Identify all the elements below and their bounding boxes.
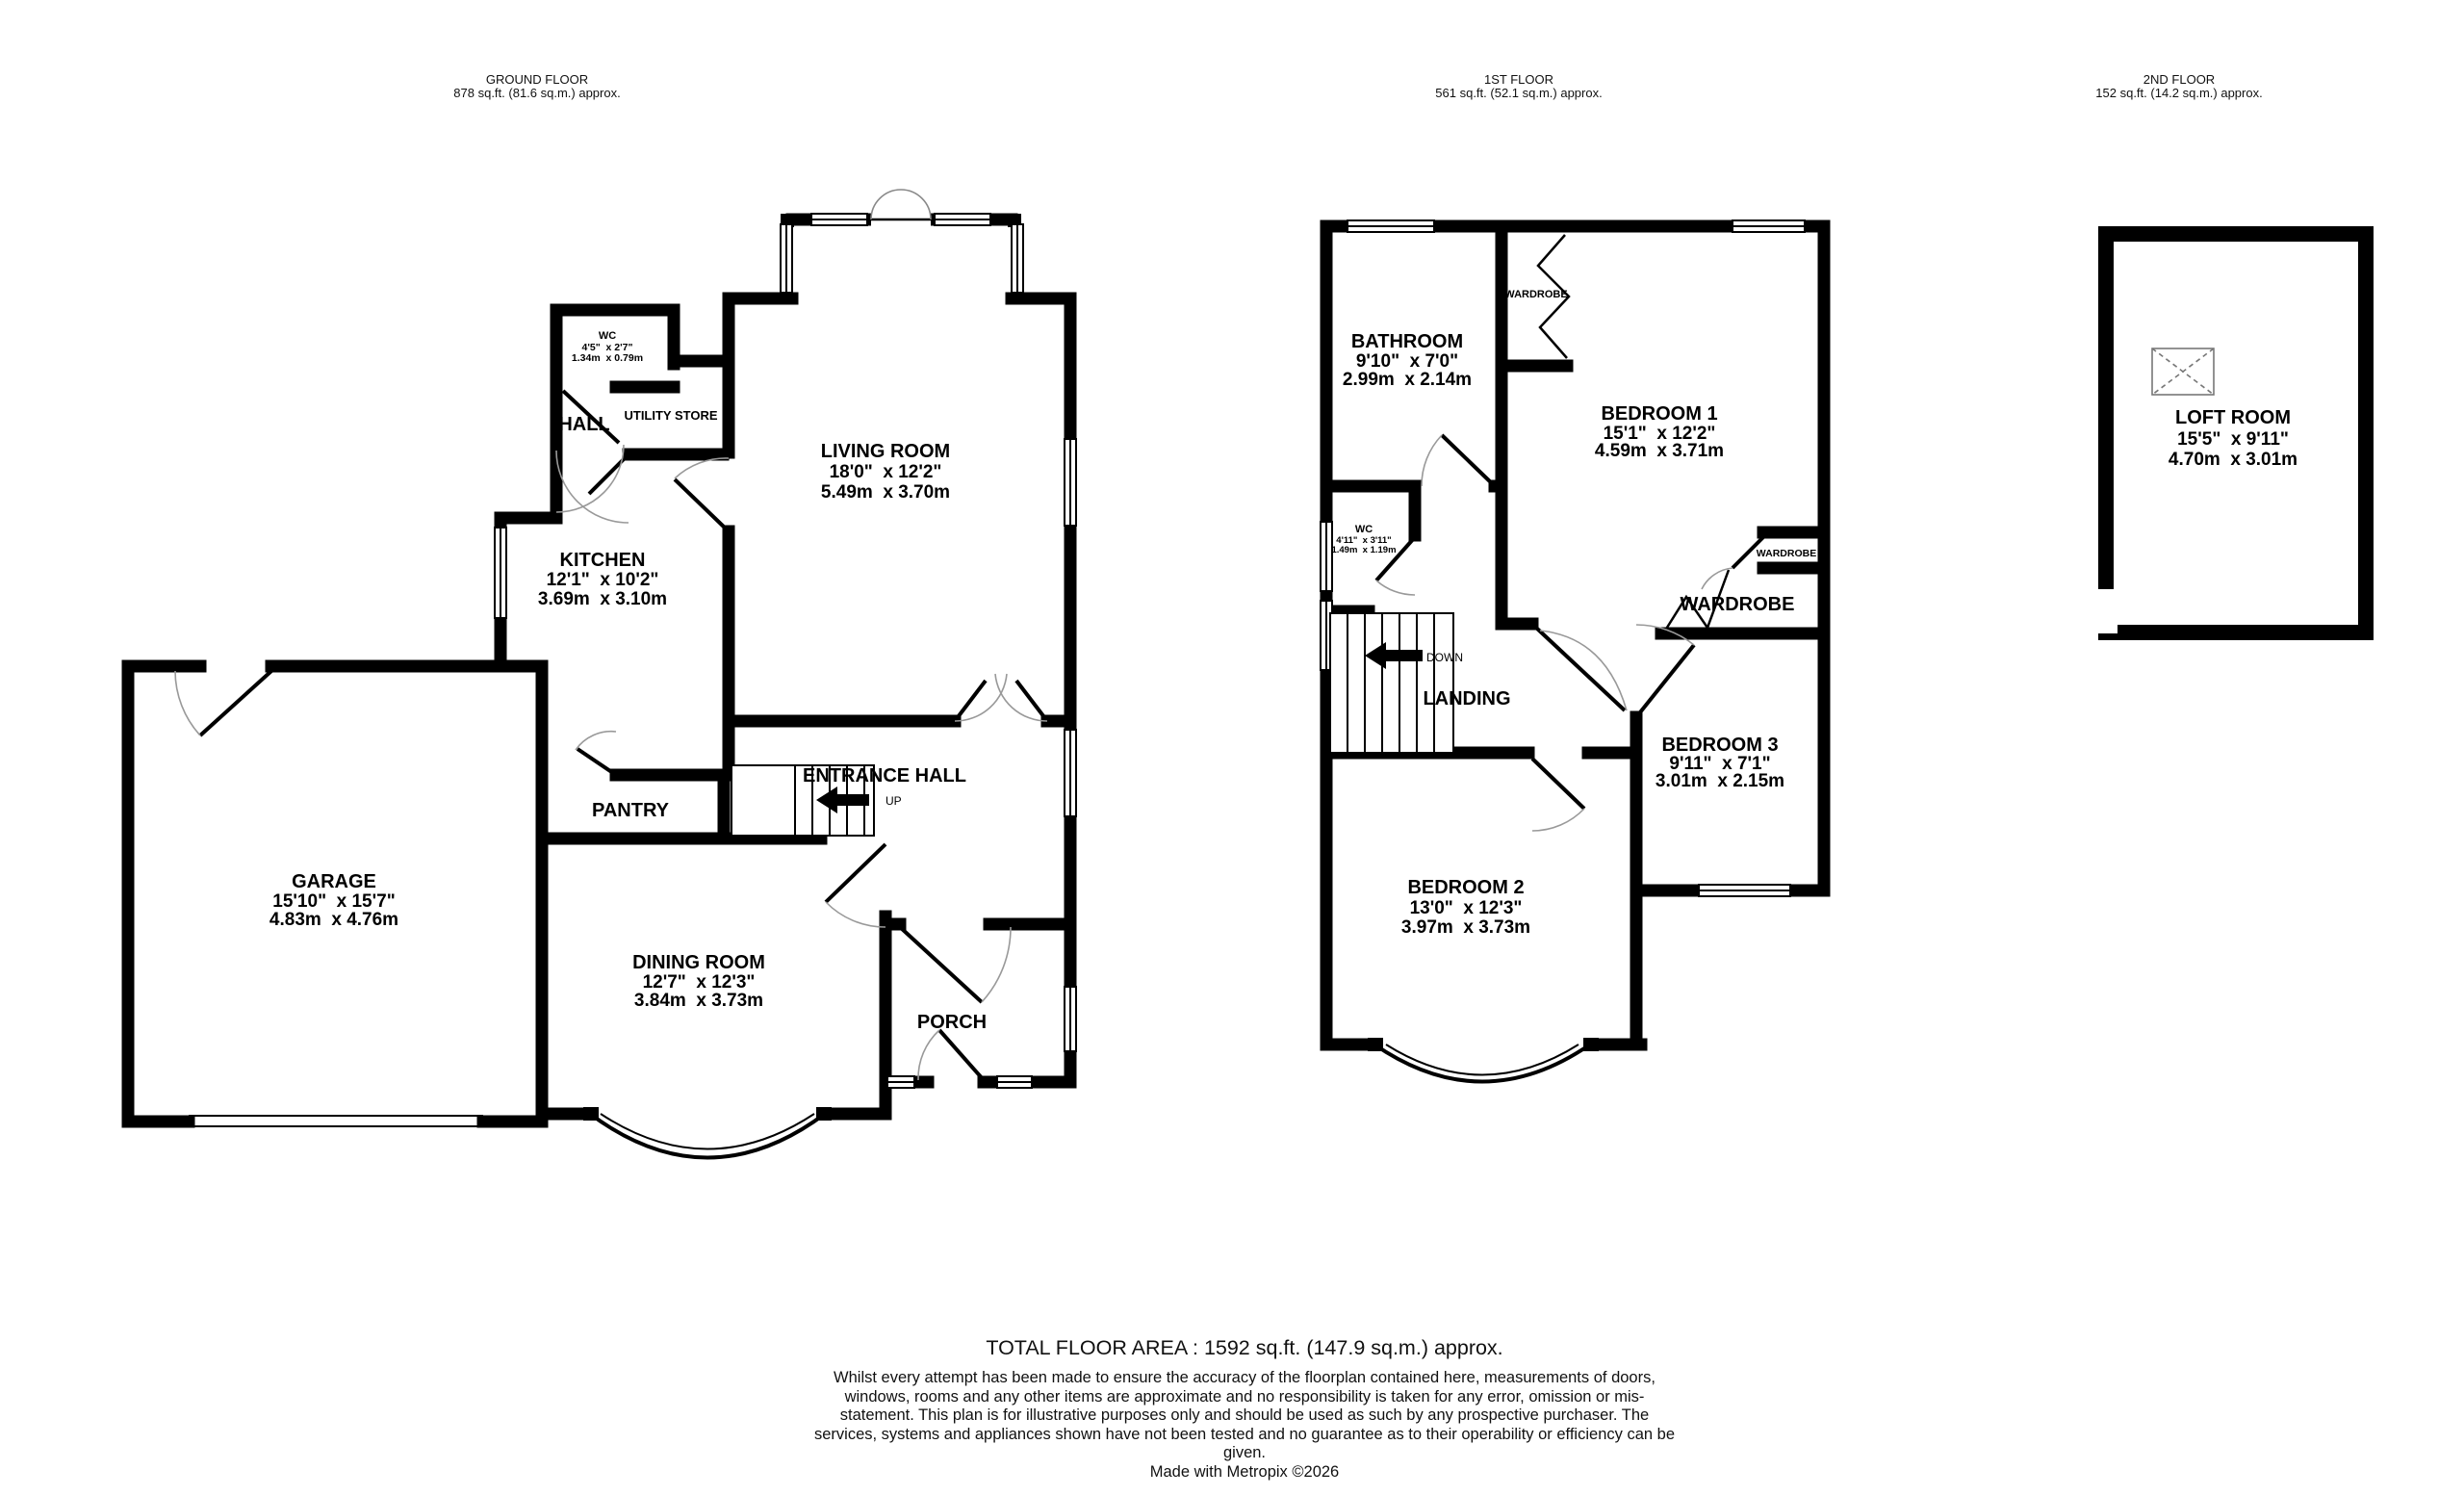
- bedroom1-label: BEDROOM 1: [1601, 403, 1717, 425]
- garage-door-leaf: [200, 671, 271, 735]
- wardrobe-large-label: WARDROBE: [1681, 594, 1795, 615]
- bathroom-metric: 2.99m x 2.14m: [1343, 370, 1472, 390]
- ground-floor-plan: WC 4'5" x 2'7" 1.34m x 0.79m HALL UTILIT…: [128, 190, 1076, 1158]
- door-arcs-ground: [175, 445, 1047, 1080]
- floorplan-drawing: WC 4'5" x 2'7" 1.34m x 0.79m HALL UTILIT…: [0, 0, 2464, 1496]
- bathroom-imperial: 9'10" x 7'0": [1356, 351, 1458, 372]
- bedroom2-metric: 3.97m x 3.73m: [1401, 917, 1530, 938]
- wardrobe-bedroom1-label: WARDROBE: [1504, 289, 1567, 300]
- window: [1321, 522, 1332, 591]
- loft-door-opening: [2094, 589, 2117, 633]
- window: [495, 528, 506, 618]
- disclaimer-text: Whilst every attempt has been made to en…: [811, 1369, 1678, 1463]
- door-arc: [918, 1030, 939, 1080]
- wc-ground-label: WC: [599, 330, 616, 342]
- bathroom-door-leaf: [1442, 435, 1495, 486]
- porch-door-leaf: [939, 1030, 984, 1080]
- bedroom2-door-leaf: [1532, 759, 1584, 809]
- window: [811, 214, 867, 225]
- door-arc: [175, 671, 200, 735]
- living-room-label: LIVING ROOM: [821, 441, 950, 462]
- wc-ground-metric: 1.34m x 0.79m: [572, 352, 643, 364]
- window: [935, 214, 990, 225]
- wardrobe-small-label: WARDROBE: [1757, 548, 1816, 559]
- loft-room-label: LOFT ROOM: [2175, 407, 2291, 428]
- metropix-credit: Made with Metropix ©2026: [783, 1463, 1707, 1483]
- bathroom-label: BATHROOM: [1351, 331, 1463, 352]
- floorplan-page: GROUND FLOOR 878 sq.ft. (81.6 sq.m.) app…: [0, 0, 2464, 1496]
- up-label: UP: [885, 794, 902, 808]
- first-floor-plan: BATHROOM 9'10" x 7'0" 2.99m x 2.14m WARD…: [1321, 220, 1824, 1082]
- window: [1732, 220, 1805, 232]
- pantry-label: PANTRY: [592, 800, 670, 821]
- garage-label: GARAGE: [292, 871, 376, 892]
- living-room-imperial: 18'0" x 12'2": [830, 462, 942, 482]
- loft-room-metric: 4.70m x 3.01m: [2169, 450, 2297, 470]
- window: [1699, 885, 1790, 896]
- door-arc: [982, 927, 1011, 1002]
- dining-room-metric: 3.84m x 3.73m: [634, 991, 763, 1011]
- door-arc: [1376, 580, 1415, 595]
- kitchen-imperial: 12'1" x 10'2": [547, 570, 659, 590]
- kitchen-metric: 3.69m x 3.10m: [538, 589, 667, 609]
- dining-door-leaf: [826, 844, 885, 902]
- door-arc: [1532, 809, 1584, 831]
- door-arc: [1422, 435, 1442, 486]
- landing-label: LANDING: [1423, 688, 1510, 709]
- kitchen-label: KITCHEN: [560, 550, 646, 571]
- bow-window: [583, 1107, 832, 1158]
- window: [1065, 439, 1076, 526]
- bedroom3-metric: 3.01m x 2.15m: [1655, 771, 1784, 791]
- wc-first-metric: 1.49m x 1.19m: [1331, 545, 1396, 555]
- down-label: DOWN: [1426, 651, 1463, 664]
- garage-door: [189, 1116, 483, 1126]
- living-door-leaf: [675, 479, 729, 531]
- bedroom1-door-leaf: [1536, 628, 1625, 710]
- dining-room-imperial: 12'7" x 12'3": [643, 972, 756, 993]
- door-arc: [675, 458, 729, 478]
- utility-store-label: UTILITY STORE: [624, 408, 717, 423]
- window: [1012, 224, 1023, 293]
- garage-metric: 4.83m x 4.76m: [269, 910, 398, 930]
- door-arc: [576, 732, 616, 750]
- loft-room-imperial: 15'5" x 9'11": [2177, 429, 2289, 450]
- roof-window-symbol: [2152, 348, 2214, 395]
- window: [1347, 220, 1434, 232]
- bay-window: [781, 190, 1023, 293]
- front-door-leaf: [900, 927, 982, 1002]
- window: [887, 1076, 914, 1088]
- door-arc: [556, 445, 624, 512]
- porch-label: PORCH: [917, 1012, 987, 1033]
- window: [781, 224, 792, 293]
- dining-room-label: DINING ROOM: [632, 952, 765, 973]
- window: [1065, 730, 1076, 816]
- bedroom2-imperial: 13'0" x 12'3": [1410, 898, 1523, 918]
- wc-first-label: WC: [1355, 524, 1373, 535]
- stairs-down: [1330, 613, 1453, 753]
- window: [997, 1076, 1032, 1088]
- second-floor-plan: LOFT ROOM 15'5" x 9'11" 4.70m x 3.01m: [2094, 234, 2366, 633]
- pantry-door-leaf: [577, 749, 616, 775]
- garage-imperial: 15'10" x 15'7": [272, 891, 395, 912]
- bedroom2-label: BEDROOM 2: [1407, 877, 1524, 898]
- footer: TOTAL FLOOR AREA : 1592 sq.ft. (147.9 sq…: [783, 1336, 1707, 1482]
- bedroom3-door-leaf: [1636, 645, 1694, 717]
- living-room-metric: 5.49m x 3.70m: [821, 482, 950, 503]
- bedroom1-metric: 4.59m x 3.71m: [1595, 441, 1724, 461]
- bow-window: [1368, 1038, 1599, 1082]
- window: [1065, 987, 1076, 1051]
- entrance-hall-label: ENTRANCE HALL: [803, 765, 966, 787]
- bedroom3-label: BEDROOM 3: [1661, 735, 1778, 756]
- door-arc: [826, 902, 885, 927]
- total-floor-area: TOTAL FLOOR AREA : 1592 sq.ft. (147.9 sq…: [783, 1336, 1707, 1359]
- hall-label: HALL: [558, 414, 609, 435]
